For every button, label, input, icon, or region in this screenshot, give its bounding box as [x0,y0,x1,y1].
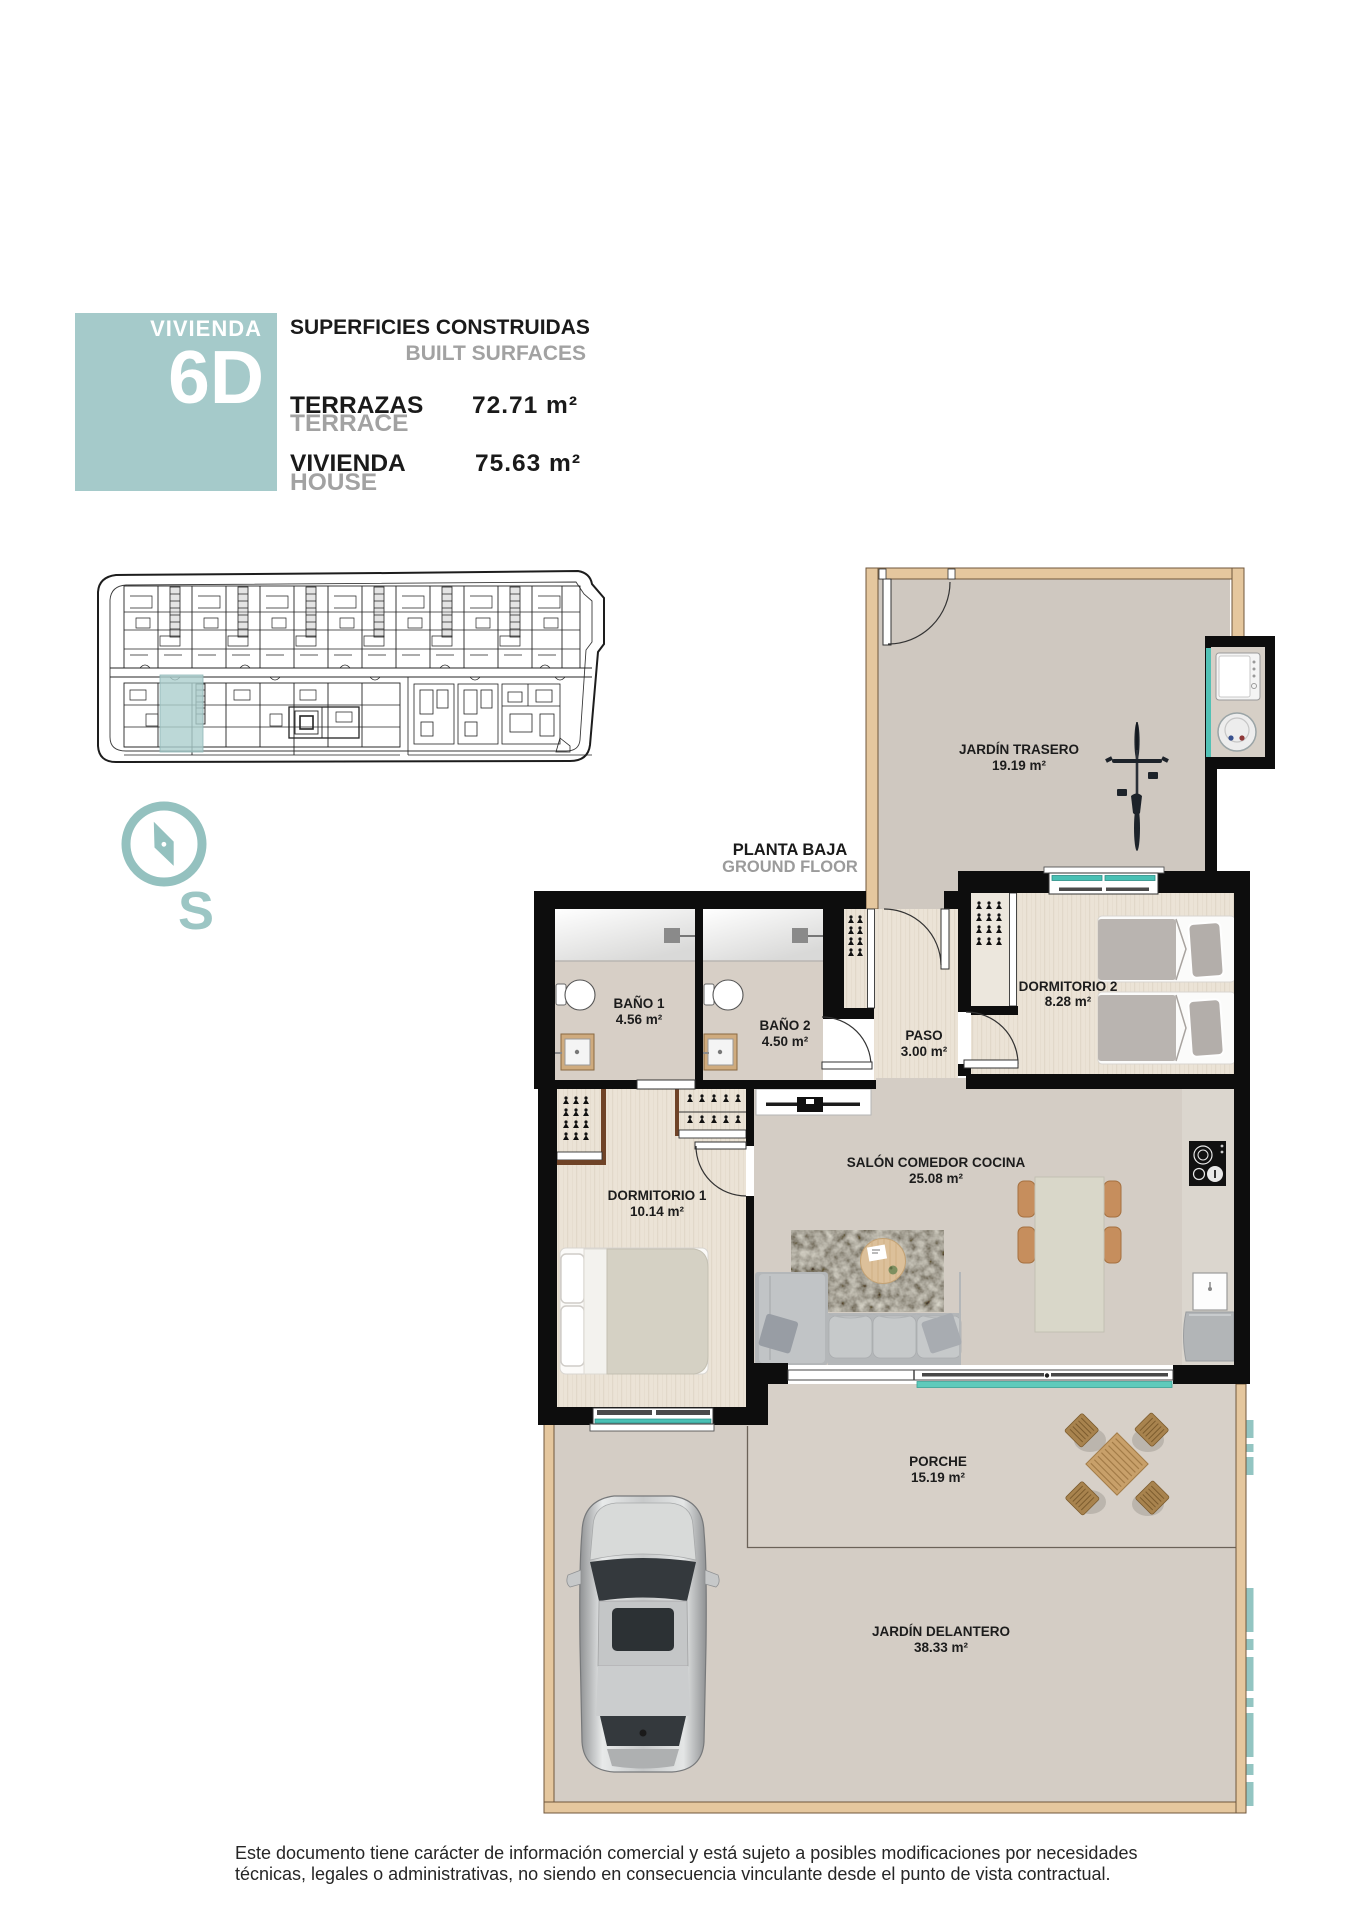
svg-text:BAÑO 1: BAÑO 1 [613,996,664,1011]
svg-text:Este documento tiene carácter: Este documento tiene carácter de informa… [235,1843,1137,1863]
svg-text:JARDÍN DELANTERO: JARDÍN DELANTERO [872,1624,1010,1639]
svg-text:TERRACE: TERRACE [290,410,408,437]
svg-text:técnicas, legales o administra: técnicas, legales o administrativas, no … [235,1864,1111,1884]
svg-text:3.00 m²: 3.00 m² [901,1044,948,1059]
svg-text:4.56 m²: 4.56 m² [616,1012,663,1027]
svg-text:PLANTA BAJA: PLANTA BAJA [733,841,848,859]
svg-text:HOUSE: HOUSE [290,469,377,496]
svg-text:JARDÍN TRASERO: JARDÍN TRASERO [959,742,1079,757]
svg-text:BUILT SURFACES: BUILT SURFACES [406,342,586,365]
svg-text:8.28 m²: 8.28 m² [1045,994,1092,1009]
svg-text:38.33 m²: 38.33 m² [914,1640,969,1655]
svg-text:BAÑO 2: BAÑO 2 [759,1018,810,1033]
svg-text:6D: 6D [168,335,264,419]
svg-text:25.08 m²: 25.08 m² [909,1171,964,1186]
svg-text:PORCHE: PORCHE [909,1454,967,1469]
svg-text:15.19 m²: 15.19 m² [911,1470,966,1485]
svg-text:10.14 m²: 10.14 m² [630,1204,685,1219]
svg-text:75.63 m²: 75.63 m² [475,450,581,477]
svg-text:S: S [178,881,214,941]
svg-text:PASO: PASO [905,1028,942,1043]
svg-text:GROUND FLOOR: GROUND FLOOR [722,858,858,876]
svg-text:19.19 m²: 19.19 m² [992,758,1047,773]
svg-text:DORMITORIO 1: DORMITORIO 1 [608,1188,707,1203]
svg-text:DORMITORIO 2: DORMITORIO 2 [1019,979,1118,994]
svg-text:72.71 m²: 72.71 m² [472,392,578,419]
svg-text:4.50 m²: 4.50 m² [762,1034,809,1049]
svg-text:SALÓN COMEDOR COCINA: SALÓN COMEDOR COCINA [847,1155,1026,1170]
svg-text:SUPERFICIES CONSTRUIDAS: SUPERFICIES CONSTRUIDAS [290,316,590,339]
